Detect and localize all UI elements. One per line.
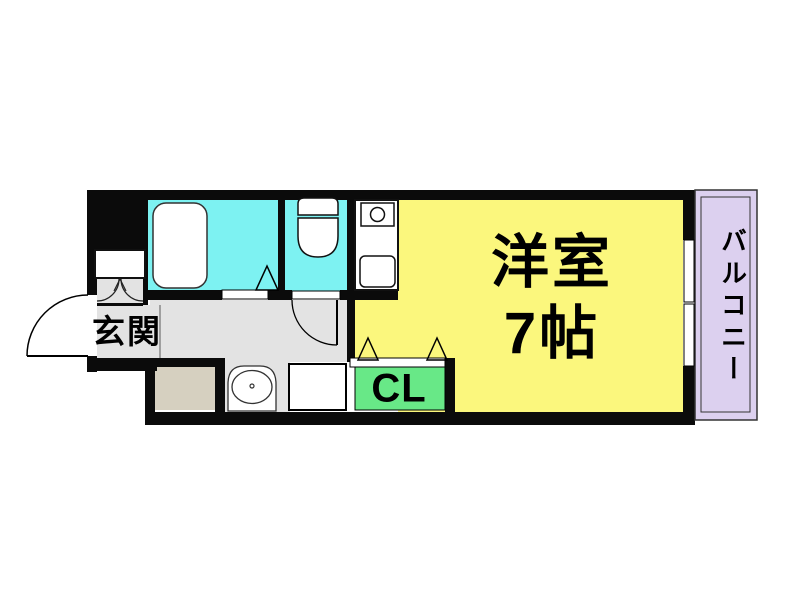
entrance-door-swing-arc [27,295,88,356]
kitchen-burner [371,208,385,222]
western-room-label: 洋室 7帖 [491,227,613,369]
closet-label: CL [371,367,426,412]
bath-door-opening [222,290,268,299]
balcony-label: バルコニー [715,227,752,387]
laundry-space [155,367,215,410]
western-room-name: 洋室 [491,230,613,295]
shoe-cabinet [95,250,145,278]
entrance-closet-floor [97,278,143,305]
wall-toilet-kitchen [347,190,355,362]
wall-laundry-top [145,358,225,367]
wall-pipe-space [87,190,148,252]
washing-machine-space [289,364,346,410]
wall-bath-bottom [148,290,222,300]
toilet-tank [298,198,338,215]
toilet-bowl [298,218,338,257]
wall-bottom [145,412,695,425]
hallway-floor [150,300,347,362]
balcony-window-lower [684,304,694,366]
wall-bath-toilet [278,190,285,300]
floorplan-page: 玄関 洋室 7帖 CL バルコニー [0,0,800,600]
wall-top [87,190,695,200]
wall-right-lower [683,366,695,425]
balcony-window-upper [684,240,694,302]
toilet-door-opening [292,291,340,299]
wall-shoebox-right [143,190,148,305]
bathtub [153,203,207,288]
western-room-size: 7帖 [504,301,600,366]
kitchen-sink [360,256,395,287]
wall-closet-right [445,358,455,415]
floorplan-graphic [0,0,800,600]
washbasin-bowl [232,371,272,404]
wall-right-upper [683,190,695,240]
genkan-label: 玄関 [92,305,162,353]
